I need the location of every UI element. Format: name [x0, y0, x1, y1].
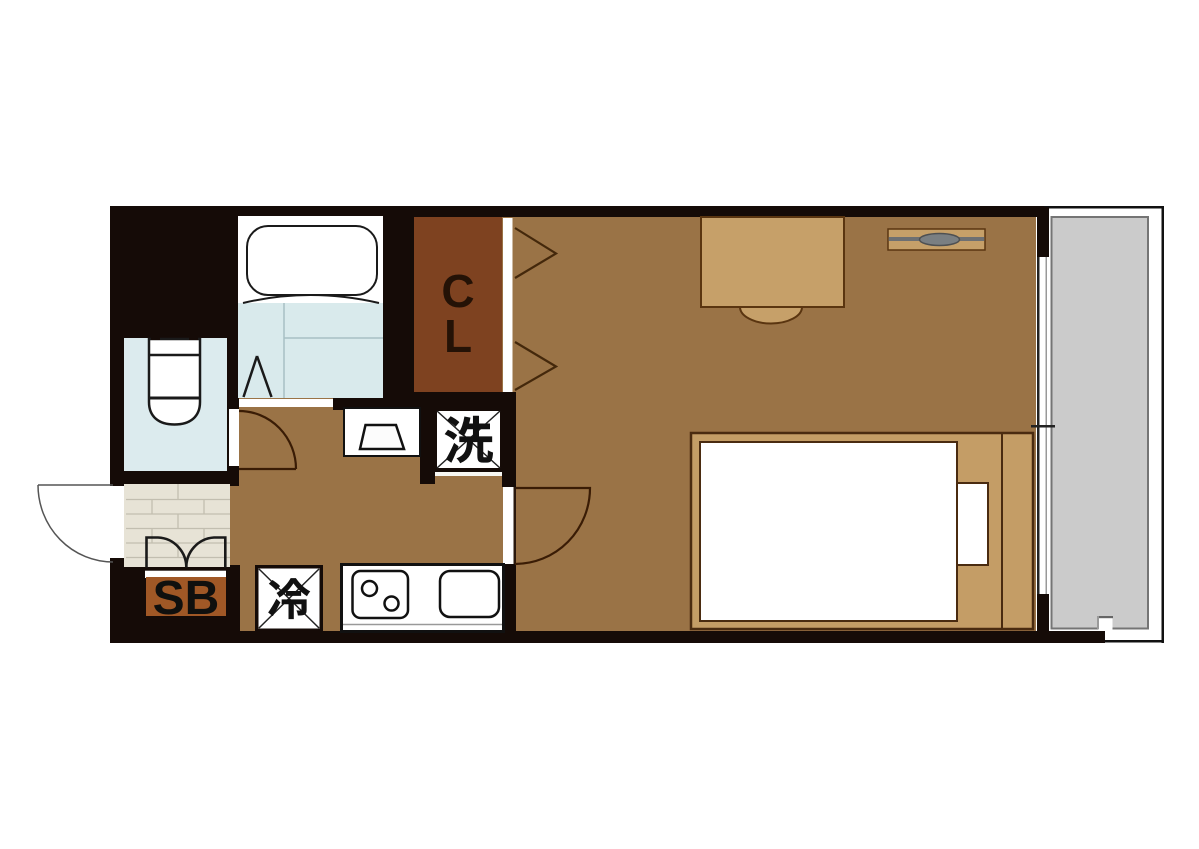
svg-text:L: L	[444, 310, 472, 362]
svg-text:SB: SB	[153, 572, 220, 625]
